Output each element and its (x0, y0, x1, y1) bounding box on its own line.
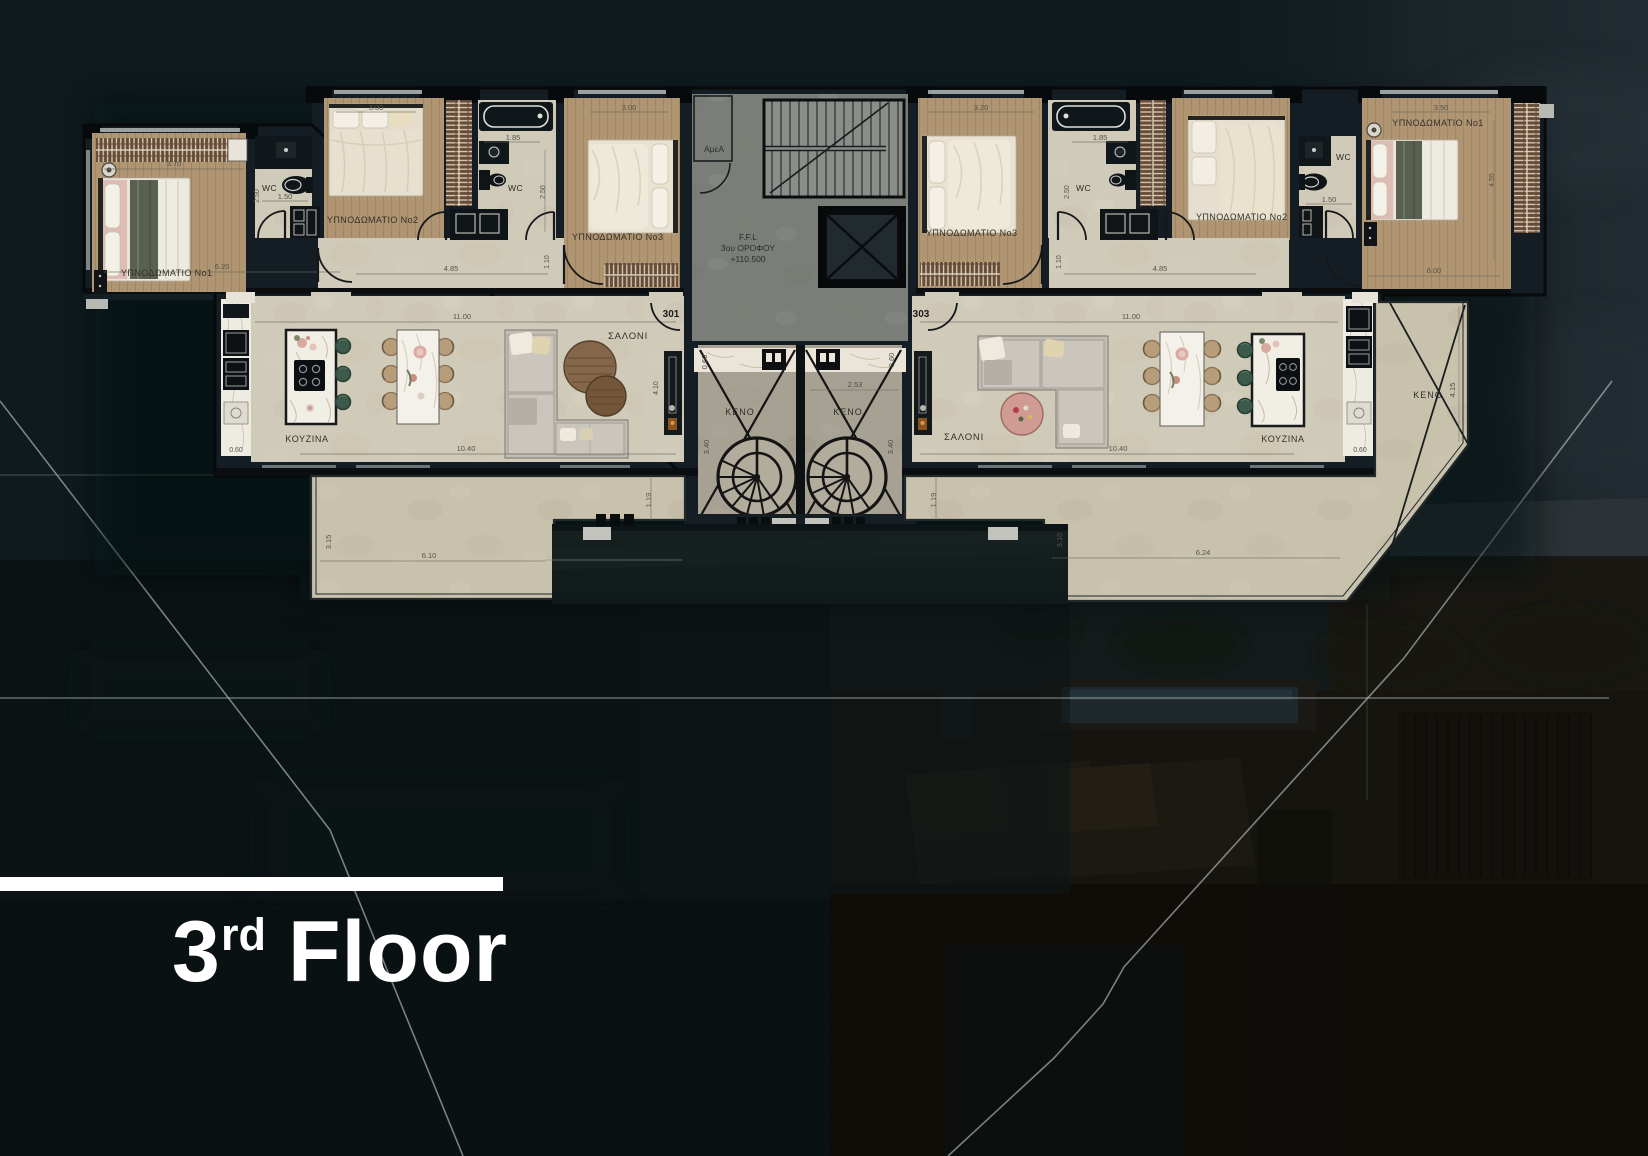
svg-text:3.00: 3.00 (622, 103, 637, 112)
svg-text:1.50: 1.50 (1322, 195, 1337, 204)
svg-text:4.85: 4.85 (1153, 264, 1168, 273)
svg-text:10.40: 10.40 (457, 444, 476, 453)
svg-text:0.60: 0.60 (229, 447, 243, 454)
svg-text:ΑμεΑ: ΑμεΑ (704, 144, 724, 154)
svg-text:3ου ΟΡΟΦΟΥ: 3ου ΟΡΟΦΟΥ (721, 243, 775, 253)
svg-text:3.40: 3.40 (886, 440, 895, 455)
svg-text:WC: WC (1336, 152, 1351, 162)
svg-text:ΚΕΝΟ: ΚΕΝΟ (725, 407, 755, 417)
svg-text:WC: WC (262, 183, 277, 193)
svg-text:ΥΠΝΟΔΩΜΑΤΙΟ Νο3: ΥΠΝΟΔΩΜΑΤΙΟ Νο3 (572, 232, 663, 242)
svg-text:3.10: 3.10 (1055, 533, 1064, 548)
svg-text:ΚΕΝΟ: ΚΕΝΟ (1413, 390, 1443, 400)
svg-text:2.50: 2.50 (540, 185, 547, 199)
svg-text:4.85: 4.85 (444, 264, 459, 273)
svg-text:+110.500: +110.500 (730, 254, 765, 264)
svg-text:ΚΟΥΖΙΝΑ: ΚΟΥΖΙΝΑ (285, 434, 328, 444)
svg-text:11.00: 11.00 (1122, 312, 1140, 321)
svg-text:ΥΠΝΟΔΩΜΑΤΙΟ Νο3: ΥΠΝΟΔΩΜΑΤΙΟ Νο3 (926, 228, 1017, 238)
svg-text:3.15: 3.15 (324, 535, 333, 550)
svg-text:ΣΑΛΟΝΙ: ΣΑΛΟΝΙ (944, 432, 984, 443)
svg-text:3.70: 3.70 (167, 159, 182, 168)
svg-text:2.50: 2.50 (254, 189, 261, 203)
svg-text:3.20: 3.20 (974, 103, 989, 112)
svg-text:ΚΕΝΟ: ΚΕΝΟ (833, 407, 863, 417)
svg-text:1.10: 1.10 (1056, 255, 1063, 269)
svg-text:11.00: 11.00 (453, 312, 471, 321)
svg-text:1.85: 1.85 (506, 133, 521, 142)
svg-text:1.19: 1.19 (929, 493, 938, 508)
svg-text:3.50: 3.50 (1434, 103, 1449, 112)
svg-text:0.60: 0.60 (887, 353, 896, 368)
svg-text:3: 3 (172, 904, 221, 1000)
svg-text:0.60: 0.60 (1353, 447, 1367, 454)
svg-text:6.00: 6.00 (1427, 266, 1442, 275)
svg-text:4.15: 4.15 (1448, 383, 1457, 398)
svg-text:1.10: 1.10 (544, 255, 551, 269)
svg-text:ΥΠΝΟΔΩΜΑΤΙΟ Νο1: ΥΠΝΟΔΩΜΑΤΙΟ Νο1 (121, 268, 212, 278)
svg-text:3.00: 3.00 (369, 103, 384, 112)
svg-text:3.40: 3.40 (702, 440, 711, 455)
svg-text:6.24: 6.24 (1196, 548, 1211, 557)
svg-text:10.40: 10.40 (1109, 444, 1128, 453)
svg-text:ΥΠΝΟΔΩΜΑΤΙΟ Νο2: ΥΠΝΟΔΩΜΑΤΙΟ Νο2 (1196, 212, 1287, 222)
svg-text:6.20: 6.20 (215, 262, 230, 271)
svg-text:ΥΠΝΟΔΩΜΑΤΙΟ Νο1: ΥΠΝΟΔΩΜΑΤΙΟ Νο1 (1392, 118, 1483, 128)
svg-text:4.55: 4.55 (1489, 173, 1496, 187)
svg-text:ΚΟΥΖΙΝΑ: ΚΟΥΖΙΝΑ (1261, 434, 1304, 444)
svg-text:ΥΠΝΟΔΩΜΑΤΙΟ Νο2: ΥΠΝΟΔΩΜΑΤΙΟ Νο2 (327, 215, 418, 225)
svg-text:303: 303 (913, 309, 930, 320)
svg-text:6.10: 6.10 (422, 551, 437, 560)
svg-text:1.85: 1.85 (1093, 133, 1108, 142)
svg-text:WC: WC (508, 183, 523, 193)
svg-text:WC: WC (1076, 183, 1091, 193)
svg-text:4.10: 4.10 (653, 381, 660, 395)
svg-text:ΣΑΛΟΝΙ: ΣΑΛΟΝΙ (608, 331, 648, 342)
svg-text:301: 301 (663, 309, 680, 320)
svg-text:Floor: Floor (288, 904, 508, 1000)
svg-text:2.53: 2.53 (848, 380, 863, 389)
svg-text:0.60: 0.60 (700, 355, 709, 370)
svg-text:1.19: 1.19 (644, 493, 653, 508)
svg-text:rd: rd (221, 909, 266, 960)
svg-text:1.50: 1.50 (278, 192, 293, 201)
svg-text:F.F.L: F.F.L (739, 232, 757, 242)
svg-text:2.50: 2.50 (1064, 185, 1071, 199)
